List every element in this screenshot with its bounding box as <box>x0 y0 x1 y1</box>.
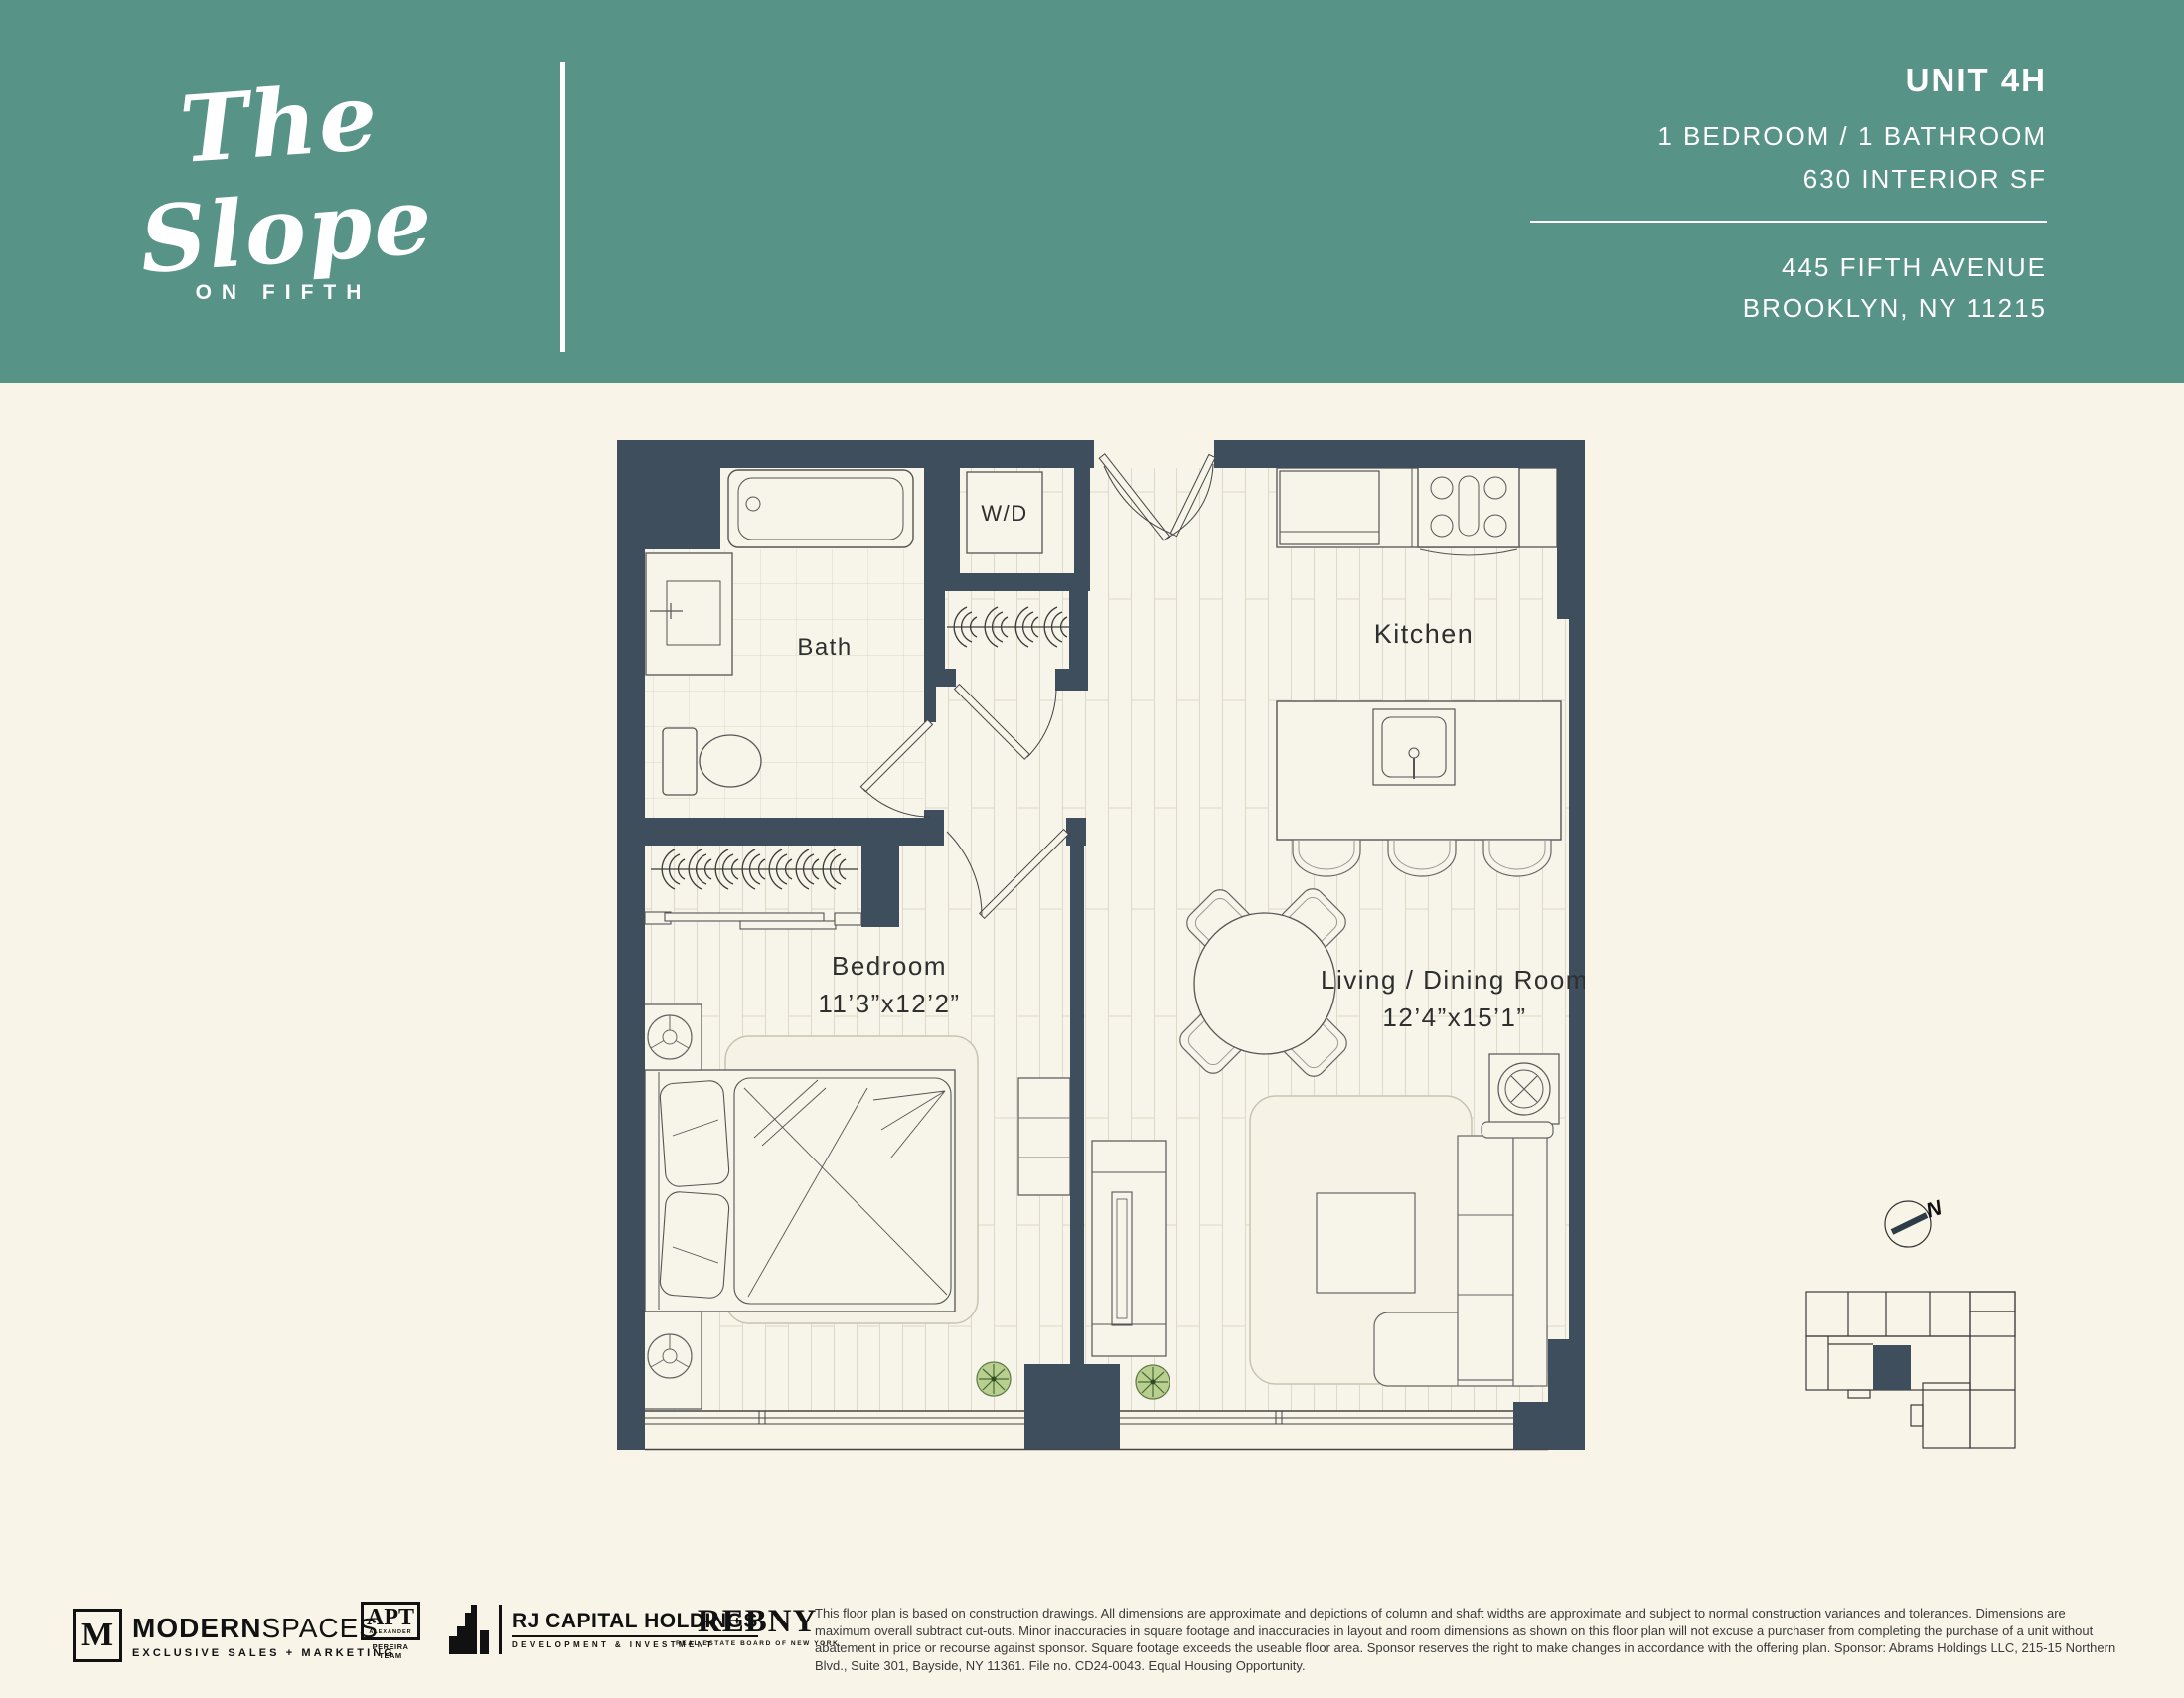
bath-label: Bath <box>797 634 852 661</box>
flyer-page: The Slope ON FIFTH UNIT 4H 1 BEDROOM / 1… <box>0 0 2184 1698</box>
tv-console <box>1092 1141 1166 1356</box>
modern-spaces-tagline: EXCLUSIVE SALES + MARKETING <box>132 1647 395 1659</box>
header-divider <box>560 62 565 352</box>
unit-info-block: UNIT 4H 1 BEDROOM / 1 BATHROOM 630 INTER… <box>1391 62 2047 324</box>
modern-spaces-logo: M MODERNSPACES EXCLUSIVE SALES + MARKETI… <box>73 1609 395 1662</box>
apt-abbr: APT <box>366 1606 415 1629</box>
floor-plan: Bath W/D Kitchen Bedroom 11’3”x12’2” Liv… <box>617 440 1585 1451</box>
plant-icon <box>1136 1365 1170 1399</box>
building-footprint <box>1806 1292 2015 1448</box>
dining-table <box>1194 913 1335 1054</box>
dresser <box>1018 1078 1070 1195</box>
bathtub <box>728 470 913 547</box>
bedroom-label: Bedroom <box>832 951 947 981</box>
nightstand-bottom <box>638 1312 702 1409</box>
north-label: N <box>1923 1196 1945 1223</box>
brand-logo-subtitle: ON FIFTH <box>79 281 487 305</box>
kitchen-island <box>1277 701 1561 840</box>
header-band: The Slope ON FIFTH UNIT 4H 1 BEDROOM / 1… <box>0 0 2184 383</box>
address-city: BROOKLYN, NY 11215 <box>1391 293 2047 324</box>
nightstand-top <box>638 1004 702 1070</box>
plant-icon <box>977 1362 1011 1396</box>
living-dims: 12’4”x15’1” <box>1382 1003 1526 1032</box>
unit-number: UNIT 4H <box>1391 62 2047 99</box>
bed-bath-spec: 1 BEDROOM / 1 BATHROOM <box>1391 121 2047 152</box>
kitchen-label: Kitchen <box>1374 619 1475 649</box>
key-plan: N <box>1789 1192 2037 1470</box>
header-rule <box>1530 221 2047 223</box>
living-label: Living / Dining Room <box>1321 965 1585 995</box>
modern-spaces-name: MODERNSPACES <box>132 1613 395 1644</box>
interior-area: 630 INTERIOR SF <box>1391 164 2047 195</box>
washer-dryer-label: W/D <box>981 501 1027 526</box>
coffee-table <box>1317 1193 1415 1293</box>
modern-spaces-monogram-icon: M <box>73 1609 122 1662</box>
kitchen-counter <box>1277 464 1557 555</box>
legal-disclaimer: This floor plan is based on construction… <box>815 1605 2118 1674</box>
north-arrow-icon: N <box>1885 1196 1946 1247</box>
apt-sub2: PEREIRA TEAM <box>361 1642 420 1660</box>
bathroom-vanity-sink <box>646 553 732 675</box>
structural-column <box>1024 1364 1120 1450</box>
stove-icon <box>1418 464 1519 555</box>
bar-stools <box>1293 840 1551 876</box>
address-street: 445 FIFTH AVENUE <box>1391 252 2047 283</box>
rj-divider <box>499 1605 502 1654</box>
brand-logo: The Slope <box>73 56 494 298</box>
side-table-lamp <box>1489 1054 1559 1124</box>
apt-sub1: ALEXANDER <box>366 1629 415 1635</box>
apt-logo: APT ALEXANDER PEREIRA TEAM <box>361 1602 420 1660</box>
bed <box>645 1070 955 1312</box>
unit-highlight <box>1873 1345 1911 1390</box>
bedroom-dims: 11’3”x12’2” <box>818 989 960 1018</box>
building-icon <box>447 1603 491 1656</box>
